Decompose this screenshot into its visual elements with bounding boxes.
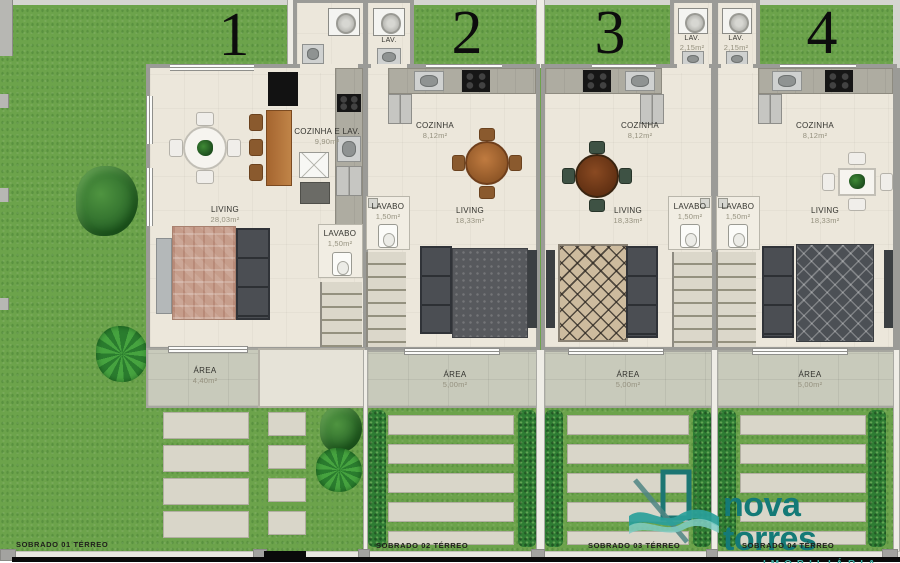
chair xyxy=(169,139,183,157)
sliding-door xyxy=(752,348,848,355)
hedge xyxy=(545,410,563,547)
kitchen-sink xyxy=(625,71,655,91)
right-boundary-wall xyxy=(893,0,900,68)
logo-subtitle: IMOBILIÁRIA xyxy=(763,559,900,563)
paver-slab xyxy=(268,445,306,469)
fridge-icon xyxy=(388,94,412,124)
tv-rack xyxy=(528,250,537,328)
chair xyxy=(589,141,605,154)
paver-slab xyxy=(388,415,514,435)
kitchen-sink xyxy=(414,71,444,91)
sink-basin-icon xyxy=(631,75,649,87)
fridge-icon xyxy=(758,94,782,124)
unit3-lav-label: LAV.2,15m² xyxy=(672,35,712,52)
unit3-sobrado-label: SOBRADO 03 TÉRREO xyxy=(588,541,680,550)
chair xyxy=(196,112,214,126)
unit1-lavabo-label: LAVABO1,50m² xyxy=(316,229,364,248)
stove-icon xyxy=(462,70,490,92)
sliding-door xyxy=(168,346,248,353)
dining-table-wood xyxy=(266,110,292,186)
unit4-sobrado-label: SOBRADO 04 TÉRREO xyxy=(742,541,834,550)
corner-cabinet xyxy=(268,72,298,106)
paver-slab xyxy=(388,502,514,522)
sliding-door xyxy=(404,348,500,355)
unit1-number: 1 xyxy=(202,4,266,66)
unit4-kitchen-label: COZINHA8,12m² xyxy=(775,121,855,140)
floor-plan-rendering: LAV. LAV.2,15m² LAV.2,15m² xyxy=(0,0,900,563)
chair xyxy=(452,155,465,171)
washer-drum-icon xyxy=(381,13,402,34)
sink-basin-icon xyxy=(307,48,320,60)
paver-slab xyxy=(163,478,249,505)
yard-divider-wall xyxy=(287,0,297,68)
palm-plant xyxy=(96,326,148,382)
left-fence-post xyxy=(0,298,9,310)
rug xyxy=(452,248,528,338)
yard-divider-wall xyxy=(536,0,545,68)
unit2-lavabo-label: LAVABO1,50m² xyxy=(364,202,412,221)
washing-machine xyxy=(678,8,708,34)
toilet-icon xyxy=(728,224,748,248)
paver-slab xyxy=(268,511,306,535)
chair xyxy=(848,152,866,165)
unit1-side-path xyxy=(260,350,363,406)
chair xyxy=(249,164,263,181)
unit2-sobrado-label: SOBRADO 02 TÉRREO xyxy=(376,541,468,550)
unit4-number: 4 xyxy=(790,2,854,64)
chair xyxy=(562,168,575,184)
sink-basin-icon xyxy=(420,75,438,87)
paver-slab xyxy=(268,412,306,436)
sink-basin-icon xyxy=(778,75,796,87)
paver-slab xyxy=(388,444,514,464)
rug xyxy=(796,244,874,342)
laundry-cabinet xyxy=(300,182,330,204)
toilet-bowl-icon xyxy=(733,233,746,247)
right-side-wall xyxy=(893,68,900,350)
kitchen-sink xyxy=(772,71,802,91)
unit2-living-label: LIVING18,33m² xyxy=(430,206,510,225)
sofa xyxy=(236,228,270,320)
chair xyxy=(249,139,263,156)
stove-icon xyxy=(337,94,361,112)
table-plant xyxy=(197,140,213,156)
washer-drum-icon xyxy=(729,13,749,33)
unit3-number: 3 xyxy=(578,2,642,64)
hedge xyxy=(518,410,536,547)
wall-patch xyxy=(721,64,753,73)
window xyxy=(146,96,153,144)
paver-slab xyxy=(388,473,514,493)
rug xyxy=(558,244,628,342)
unit4-area-label: ÁREA5,00m² xyxy=(770,370,850,389)
unit2-number: 2 xyxy=(435,2,499,64)
washer-drum-icon xyxy=(336,13,357,34)
chair xyxy=(822,173,835,191)
dining-table xyxy=(575,154,619,198)
stove-icon xyxy=(583,70,611,92)
toilet-bowl-icon xyxy=(337,261,350,275)
fridge-icon xyxy=(336,166,362,196)
lot-divider-wall xyxy=(536,350,545,552)
sink-basin-icon xyxy=(687,55,700,64)
chair xyxy=(479,128,495,141)
unit3-lavabo-label: LAVABO1,50m² xyxy=(666,202,714,221)
chair xyxy=(880,173,893,191)
chair xyxy=(509,155,522,171)
washing-machine xyxy=(722,8,752,34)
palm-plant xyxy=(316,448,362,492)
tv-rack xyxy=(884,250,893,328)
sink-basin-icon xyxy=(382,52,396,62)
unit1-living-label: LIVING28,03m² xyxy=(185,205,265,224)
toilet-icon xyxy=(680,224,700,248)
nova-torres-logo: nova torres IMOBILIÁRIA xyxy=(627,466,900,548)
chair xyxy=(227,139,241,157)
unit3-living-label: LIVING18,33m² xyxy=(588,206,668,225)
tv-rack xyxy=(546,250,555,328)
logo-house-wave-icon xyxy=(627,466,719,546)
toilet-icon xyxy=(378,224,398,248)
washing-machine xyxy=(373,8,405,36)
paver-slab xyxy=(740,444,866,464)
unit2-lav-label: LAV. xyxy=(368,37,410,45)
unit3-stairs xyxy=(672,252,712,347)
left-fence-post xyxy=(0,94,9,108)
paver-slab xyxy=(268,478,306,502)
unit2-area-label: ÁREA5,00m² xyxy=(415,370,495,389)
unit3-area-label: ÁREA5,00m² xyxy=(588,370,668,389)
window xyxy=(146,168,153,226)
unit4-lav-label: LAV.2,15m² xyxy=(716,35,756,52)
unit1-sobrado-label: SOBRADO 01 TÉRREO xyxy=(16,540,108,549)
unit2-kitchen-label: COZINHA8,12m² xyxy=(395,121,475,140)
fridge-icon xyxy=(640,94,664,124)
sofa xyxy=(420,246,452,334)
paver-slab xyxy=(163,445,249,472)
chair xyxy=(196,170,214,184)
laundry-sink xyxy=(302,44,324,64)
sink-basin-icon xyxy=(731,55,744,64)
toilet-bowl-icon xyxy=(685,233,698,247)
hedge xyxy=(368,410,386,547)
left-fence-post xyxy=(0,188,9,202)
unit2-stairs xyxy=(366,252,406,347)
chair xyxy=(249,114,263,131)
sofa xyxy=(626,246,658,338)
sliding-door xyxy=(568,348,664,355)
rug xyxy=(172,226,236,320)
toilet-icon xyxy=(332,252,352,276)
logo-text: nova torres IMOBILIÁRIA xyxy=(723,488,900,563)
tv-rack xyxy=(156,238,172,314)
toilet-bowl-icon xyxy=(383,233,396,247)
paver-slab xyxy=(163,511,249,538)
washing-machine xyxy=(328,8,360,36)
sofa xyxy=(762,246,794,338)
chair xyxy=(619,168,632,184)
left-fence xyxy=(0,0,13,56)
paver-slab xyxy=(163,412,249,439)
wall-patch xyxy=(677,64,709,73)
stove-icon xyxy=(825,70,853,92)
unit1-stairs xyxy=(320,282,362,347)
unit4-lavabo-label: LAVABO1,50m² xyxy=(714,202,762,221)
paver-slab xyxy=(567,444,689,464)
dining-table xyxy=(465,141,509,185)
unit3-kitchen-label: COZINHA8,12m² xyxy=(600,121,680,140)
unit4-stairs xyxy=(716,252,756,347)
paver-slab xyxy=(740,415,866,435)
unit1-area-label: ÁREA4,40m² xyxy=(165,366,245,385)
paver-slab xyxy=(567,415,689,435)
unit4-living-label: LIVING18,33m² xyxy=(785,206,865,225)
chair xyxy=(479,186,495,199)
table-plant xyxy=(849,174,865,189)
dishwasher-icon xyxy=(299,152,329,178)
unit1-kitchen-label: COZINHA E LAV.9,90m² xyxy=(287,127,367,146)
washer-drum-icon xyxy=(685,13,705,33)
